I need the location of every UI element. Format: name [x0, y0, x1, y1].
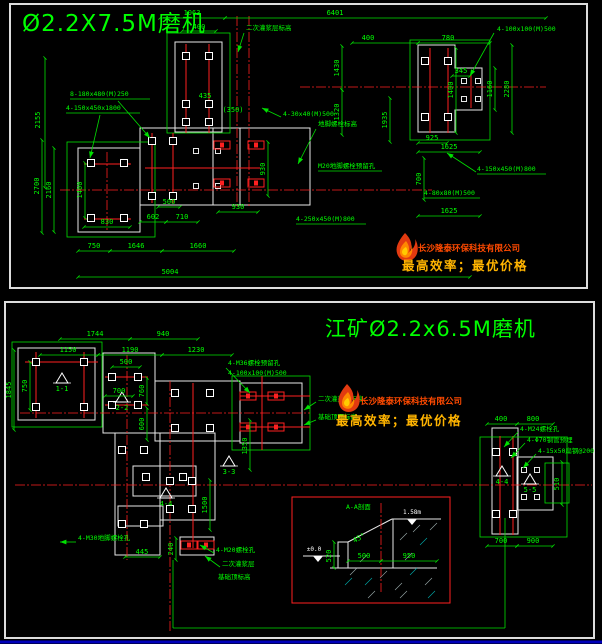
top-anchor-bolts: [88, 53, 481, 222]
dim-label: 600: [138, 418, 146, 431]
company-slogan: 最高效率；最优价格: [336, 413, 462, 428]
annotation-label: 4-100x100(M)500: [228, 369, 287, 377]
dim-label: 1160: [486, 81, 494, 98]
elevation-value: ±0.0: [307, 546, 322, 553]
dim-label: 1500: [201, 497, 209, 514]
dim-label: 510: [553, 478, 561, 491]
company-name: 长沙隆泰环保科技有限公司: [360, 396, 462, 407]
dim-label: 500: [163, 198, 176, 206]
section-label: 4-4: [160, 500, 173, 508]
annotation-label: 4-250x450(M)800: [296, 215, 355, 223]
dim-label: 1350: [241, 438, 249, 455]
bottom-panel: 江矿Ø2.2x6.5M磨机: [5, 302, 594, 638]
dim-label: 800: [527, 415, 540, 423]
dim-label: 940: [157, 330, 170, 338]
dim-label: 700: [415, 173, 423, 186]
bottom-panel-border: [5, 302, 594, 638]
dim-label: 780: [442, 34, 455, 42]
annotation-label: 地脚螺栓标高: [318, 119, 358, 128]
dim-label: 700: [113, 387, 126, 395]
dim-label: 6401: [327, 9, 344, 17]
section-label: 1-1: [56, 385, 69, 393]
dim-label: 1935: [381, 112, 389, 129]
dim-label: 445: [136, 548, 149, 556]
elevation-value: 1.58m: [403, 509, 421, 516]
dim-label: 1744: [87, 330, 104, 338]
dim-label: 1625: [441, 143, 458, 151]
annotation-label: 8-180x480(M)250: [70, 90, 129, 98]
bottom-dimension-labels: 1744 940 1150 1190 1230 1845 750 500 760…: [5, 330, 594, 581]
detail-title: A-A剖面: [346, 502, 371, 511]
bottom-drawing-title: 江矿Ø2.2x6.5M磨机: [325, 317, 536, 341]
dim-label: 345: [455, 67, 468, 75]
annotation-label: M20地脚螺栓预留孔: [318, 161, 376, 170]
dim-label: 2155: [34, 112, 42, 129]
dim-label: 1430: [333, 60, 341, 77]
annotation-label: 4-80x80(M)500: [424, 189, 475, 197]
company-logo-bottom: 长沙隆泰环保科技有限公司 最高效率；最优价格: [336, 384, 462, 428]
dim-label: 1230: [188, 346, 205, 354]
cad-canvas: Ø2.2X7.5M磨机: [0, 0, 602, 644]
flame-icon: [397, 233, 418, 261]
dim-label: 1625: [441, 207, 458, 215]
dim-label: 435: [199, 92, 212, 100]
section-label: 3-3: [223, 468, 236, 476]
annotation-label: 二次灌浆层: [222, 559, 255, 568]
elevation-mark-icon: [313, 556, 323, 562]
dim-label: 900: [527, 537, 540, 545]
annotation-label: 二次灌浆层标高: [246, 23, 292, 32]
section-label: 2-2: [116, 404, 129, 412]
top-panel: Ø2.2X7.5M磨机: [10, 4, 587, 288]
section-detail-box: A-A剖面 1.58m ±0.0: [292, 497, 450, 603]
company-logo-top: 长沙隆泰环保科技有限公司 最高效率；最优价格: [397, 233, 528, 273]
dim-label: 2160: [45, 182, 53, 199]
section-label: 4-4: [496, 478, 509, 486]
dim-label: 1845: [5, 382, 13, 399]
company-slogan: 最高效率；最优价格: [402, 258, 528, 273]
flame-icon: [339, 384, 360, 412]
company-name: 长沙隆泰环保科技有限公司: [418, 243, 520, 254]
dim-label: 830: [101, 218, 114, 226]
dim-label: 400: [193, 23, 206, 31]
bottom-centerlines: [15, 352, 592, 632]
dim-label: 950: [403, 552, 416, 560]
dim-label: 1063: [184, 9, 201, 17]
annotation-label: 4-M30地脚螺栓孔: [78, 533, 131, 542]
dim-label: 1646: [128, 242, 145, 250]
annotation-label: 4-150x450(M)800: [477, 165, 536, 173]
dim-label: 400: [362, 34, 375, 42]
dim-label: 400: [495, 415, 508, 423]
dim-label: 602: [147, 213, 160, 221]
annotation-label: 4-Φ70钢管预埋: [527, 435, 573, 444]
dim-label: 520: [325, 550, 333, 563]
annotation-label: 4-150x450x1800: [66, 104, 121, 112]
annotation-label: 4-M24螺栓孔: [520, 424, 560, 433]
dim-label: 1190: [122, 346, 139, 354]
dim-label: 1400: [447, 82, 455, 99]
bottom-foundation-outlines: [12, 342, 569, 555]
dim-label: (350): [222, 106, 243, 114]
annotation-label: 4-30x40(M)500: [283, 110, 334, 118]
dim-label: 1150: [60, 346, 77, 354]
dim-label: 500: [358, 552, 371, 560]
dim-label: 1660: [190, 242, 207, 250]
top-dimension-labels: 1063 6401 400 400 780 4-100x100(M)500 21…: [33, 9, 556, 276]
annotation-label: 4-15x50扁钢@200: [538, 446, 594, 455]
dim-label: 925: [426, 134, 439, 142]
dim-label: 930: [259, 163, 267, 176]
dim-label: 1400: [76, 182, 84, 199]
dim-label: 750: [88, 242, 101, 250]
dim-label: 760: [138, 385, 146, 398]
dim-label: 700: [495, 537, 508, 545]
elevation-mark-icon: [407, 519, 417, 525]
dim-label: 2280: [503, 81, 511, 98]
dim-label: 240: [167, 543, 175, 556]
dim-label: 710: [176, 213, 189, 221]
section-label: 5-5: [524, 486, 537, 494]
dim-label: 750: [21, 380, 29, 393]
dim-label: 2700: [33, 178, 41, 195]
annotation-label: 4-100x100(M)500: [497, 25, 556, 33]
annotation-label: 4-M36螺栓预留孔: [228, 358, 281, 367]
bottom-anchor-bolts: [33, 359, 540, 550]
dim-label: 930: [232, 203, 245, 211]
dim-label: 1320: [333, 104, 341, 121]
detail-profile: [330, 503, 437, 592]
bottom-section-marks: 1-1 2-2 3-3 4-4 4-4 5-5: [53, 373, 539, 508]
dim-label: 5004: [162, 268, 179, 276]
dim-label: 500: [120, 358, 133, 366]
cad-viewport: Ø2.2X7.5M磨机: [0, 0, 602, 644]
annotation-label: 4-M20螺栓孔: [216, 545, 256, 554]
annotation-label: 基础顶标高: [218, 572, 251, 581]
